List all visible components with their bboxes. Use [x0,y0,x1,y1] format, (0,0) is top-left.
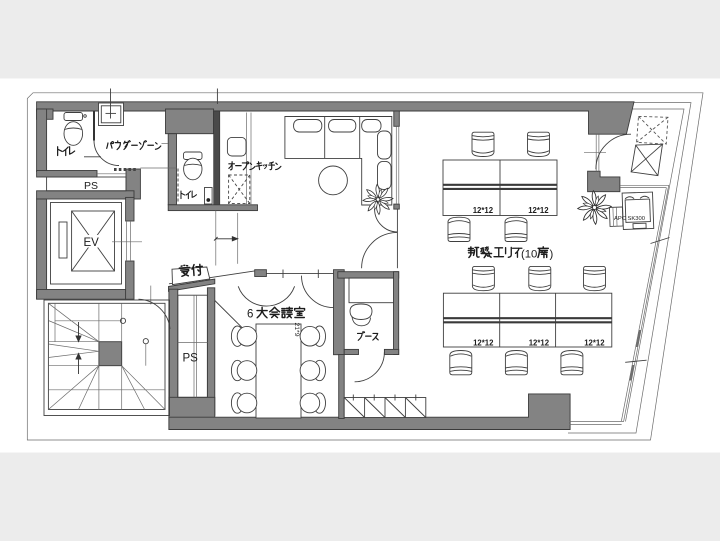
svg-text:): ) [550,249,554,261]
svg-text:12*12: 12*12 [473,339,494,348]
svg-text:12*12: 12*12 [473,206,494,215]
svg-text:PS: PS [84,180,98,192]
svg-text:6: 6 [247,309,253,321]
svg-text:PS: PS [183,353,199,365]
svg-text:21*9: 21*9 [293,323,300,337]
svg-text:12*12: 12*12 [584,339,605,348]
svg-text:12*12: 12*12 [528,206,549,215]
svg-text:(10: (10 [521,249,537,261]
svg-text:12*12: 12*12 [529,339,550,348]
svg-text:APC SK300: APC SK300 [614,216,645,222]
svg-text:EV: EV [84,237,100,249]
